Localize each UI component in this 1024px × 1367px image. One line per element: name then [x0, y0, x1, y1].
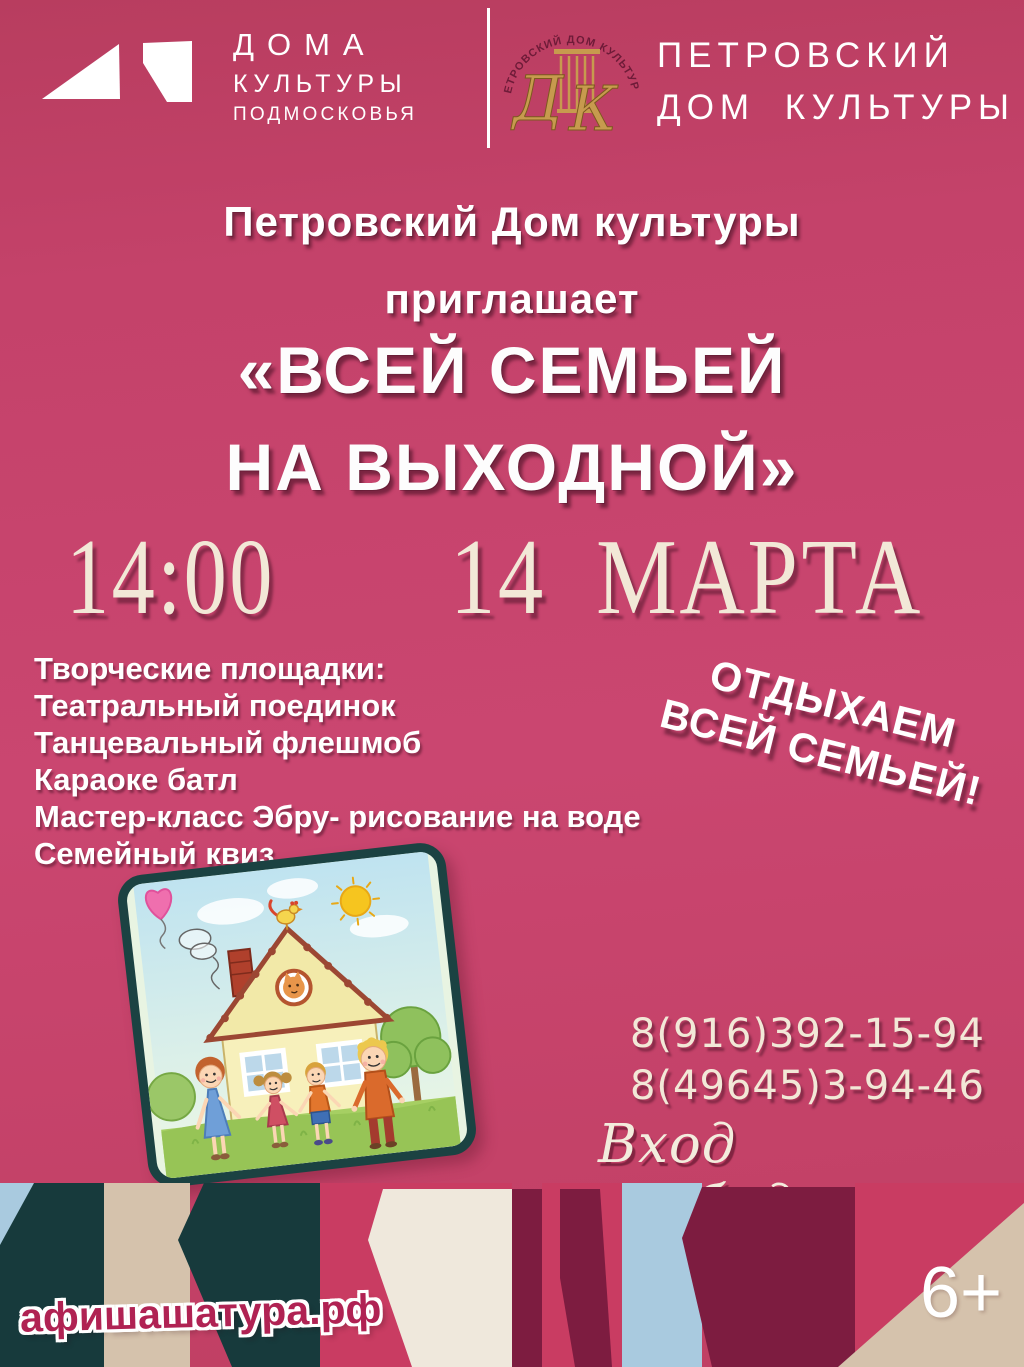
event-title-line2: НА ВЫХОДНОЙ» — [0, 419, 1024, 516]
activities-heading: Творческие площадки: — [34, 650, 641, 687]
brand-right-text: ПЕТРОВСКИЙ ДОМ КУЛЬТУРЫ — [657, 36, 1015, 128]
bottom-pattern-band — [0, 1183, 1024, 1367]
activity-item: Мастер-класс Эбру- рисование на воде — [34, 798, 641, 835]
event-date: 14 МАРТА — [450, 516, 923, 640]
event-title: «ВСЕЙ СЕМЬЕЙ НА ВЫХОДНОЙ» — [0, 322, 1024, 516]
age-rating-badge: 6+ — [920, 1252, 1002, 1334]
cartoon-family-house-icon — [125, 850, 469, 1179]
contact-phones: 8(916)392-15-94 8(49645)3-94-46 — [600, 1008, 985, 1112]
activity-item: Театральный поединок — [34, 687, 641, 724]
family-house-illustration — [115, 840, 478, 1189]
phone-number-1: 8(916)392-15-94 — [600, 1008, 985, 1060]
brand-right-line2: ДОМ КУЛЬТУРЫ — [657, 88, 1015, 128]
emblem-monogram-d: Д — [510, 62, 565, 135]
petrovsky-dk-emblem-icon: ПЕТРОВСКИЙ ДОМ КУЛЬТУРЫ Д К — [497, 10, 647, 155]
brand-left-line1: ДОМА — [233, 27, 417, 63]
event-title-line1: «ВСЕЙ СЕМЬЕЙ — [0, 322, 1024, 419]
event-poster: ДОМА КУЛЬТУРЫ ПОДМОСКОВЬЯ ПЕТРОВСКИЙ ДОМ… — [0, 0, 1024, 1367]
activity-item: Танцевальный флешмоб — [34, 724, 641, 761]
intro-text: Петровский Дом культуры приглашает — [0, 183, 1024, 337]
intro-line1: Петровский Дом культуры — [0, 183, 1024, 260]
event-time: 14:00 — [66, 516, 275, 640]
activities-list: Творческие площадки: Театральный поедино… — [34, 650, 641, 872]
dk-podmoskovya-logo-icon — [0, 0, 220, 120]
header-divider — [487, 8, 490, 148]
phone-number-2: 8(49645)3-94-46 — [600, 1060, 985, 1112]
brand-left-line3: ПОДМОСКОВЬЯ — [233, 104, 417, 126]
emblem-monogram-k: К — [568, 72, 619, 145]
brand-left-line2: КУЛЬТУРЫ — [233, 70, 417, 99]
brand-right-line1: ПЕТРОВСКИЙ — [657, 36, 1015, 76]
activity-item: Караоке батл — [34, 761, 641, 798]
brand-left-text: ДОМА КУЛЬТУРЫ ПОДМОСКОВЬЯ — [233, 27, 417, 126]
website-label: афишашатура.рф — [19, 1285, 381, 1341]
slogan-text: ОТДЫХАЕМ ВСЕЙ СЕМЬЕЙ! — [626, 632, 1024, 823]
